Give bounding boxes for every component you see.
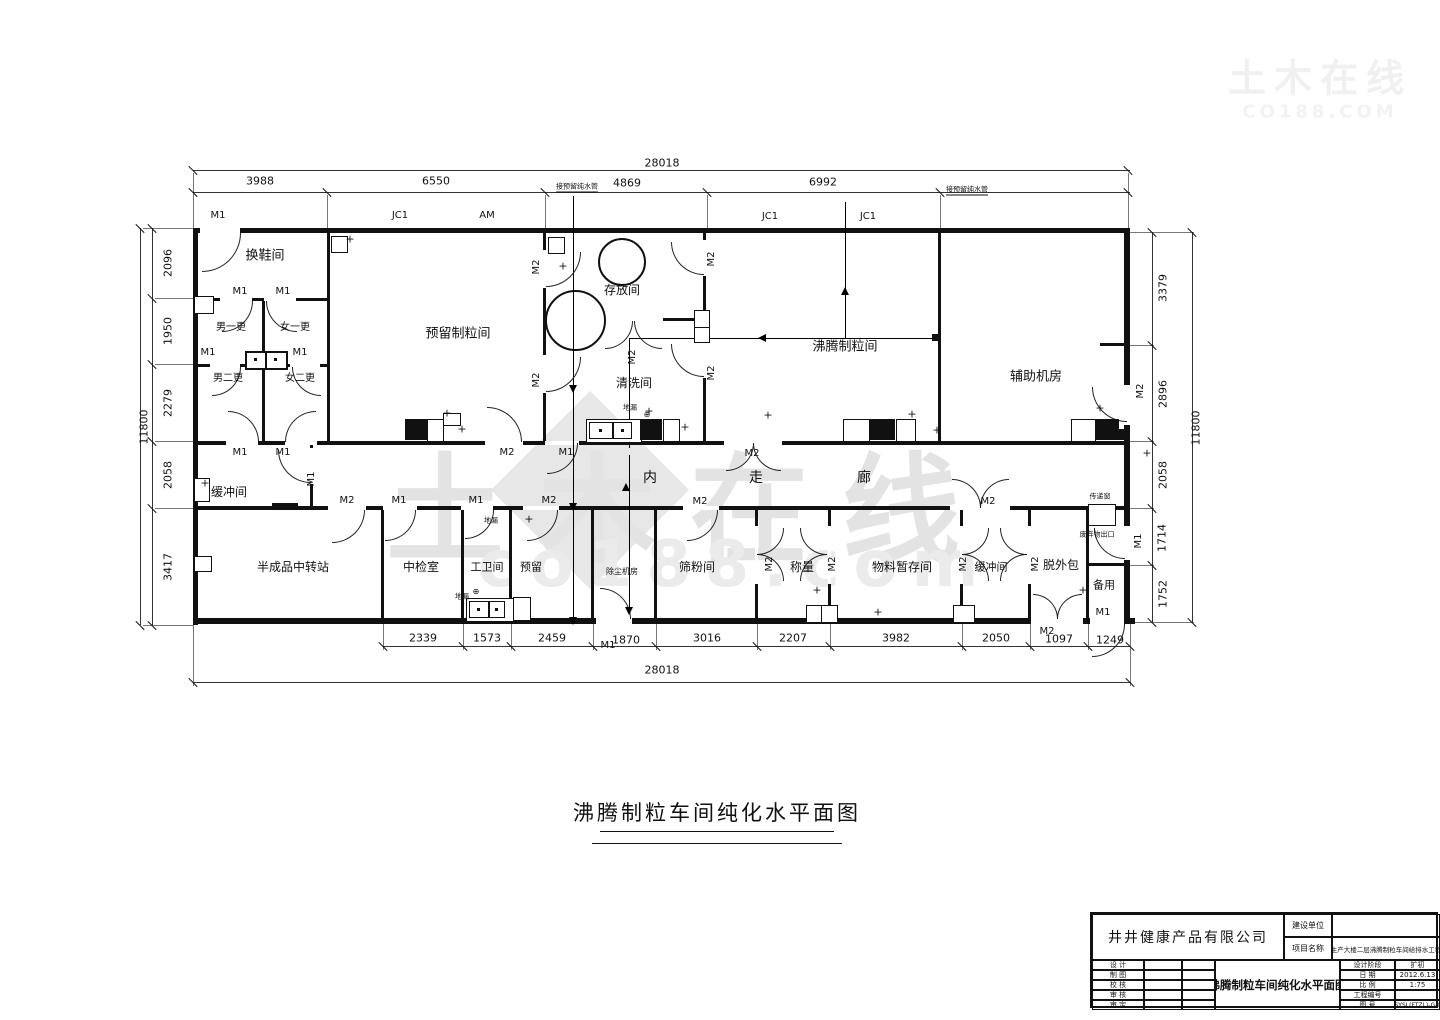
door-label: M2 xyxy=(628,350,638,365)
door-label: M1 xyxy=(293,348,308,358)
shaft-box xyxy=(869,419,895,440)
fixture-box xyxy=(194,556,212,572)
door-arc xyxy=(202,233,241,272)
fixture-dot xyxy=(477,608,480,611)
door-opening xyxy=(1028,526,1031,584)
door-arc xyxy=(1033,594,1058,619)
pipe-arrow xyxy=(625,607,633,619)
room-label: 半成品中转站 xyxy=(257,561,329,573)
door-arc xyxy=(671,242,704,275)
room-label: 辅助机房 xyxy=(1010,371,1062,384)
room-label: 备用 xyxy=(1093,580,1115,591)
dimension-line xyxy=(152,228,153,625)
plus-mark: + xyxy=(932,425,941,436)
wall-segment xyxy=(327,231,330,443)
title-underline-2 xyxy=(592,843,842,844)
waste-exit-label: 废弃物出口 xyxy=(1080,532,1115,539)
door-label: M2 xyxy=(340,496,355,506)
door-arc xyxy=(634,321,662,349)
field-value: HSYSL(FTZL)-G-06 xyxy=(1395,1000,1440,1010)
dim: 2096 xyxy=(163,249,174,277)
room-label: 除尘机房 xyxy=(606,568,638,576)
room-label: 存放间 xyxy=(604,284,640,296)
dim: 3982 xyxy=(882,633,910,644)
window-label: JC1 xyxy=(860,212,876,222)
door-label: M2 xyxy=(500,448,515,458)
dim: 2050 xyxy=(982,633,1010,644)
room-label: 女一更 xyxy=(280,323,310,333)
title-underline xyxy=(600,831,834,832)
dim: 6550 xyxy=(422,176,450,187)
dim-total-top: 28018 xyxy=(645,158,680,169)
shaft-box xyxy=(1106,429,1125,440)
dim: 2339 xyxy=(409,633,437,644)
plus-mark: + xyxy=(558,261,567,272)
room-label: 称量 xyxy=(790,561,814,573)
sign-row-blank xyxy=(1144,960,1182,970)
door-label: M1 xyxy=(392,496,407,506)
door-label: M2 xyxy=(959,557,969,572)
door-label: M1 xyxy=(276,287,291,297)
room-label: 清洗间 xyxy=(616,377,652,389)
window-label: AM xyxy=(479,211,494,221)
project-label: 项目名称 xyxy=(1284,937,1332,960)
wall-segment xyxy=(198,441,1124,445)
title-block-drawing-title: 沸腾制粒车间纯化水平面图 xyxy=(1215,960,1340,1010)
fixture-box xyxy=(1071,419,1096,442)
fixture-dot xyxy=(599,429,602,432)
pipe-line xyxy=(845,202,846,338)
extension-line xyxy=(940,195,941,229)
room-label: 换鞋间 xyxy=(245,250,284,263)
pipe-line xyxy=(629,338,938,339)
door-arc xyxy=(332,510,365,543)
dim: 3417 xyxy=(163,553,174,581)
dim: 2058 xyxy=(163,461,174,489)
room-label: 廊 xyxy=(857,471,871,485)
shaft-box xyxy=(272,503,298,509)
door-label: M1 xyxy=(559,448,574,458)
dim-total-right: 11800 xyxy=(1191,411,1202,446)
dimension-line xyxy=(193,192,1130,193)
pipe-arrow xyxy=(569,385,577,397)
window-bar xyxy=(838,230,900,233)
equipment-tank xyxy=(545,290,606,351)
drain-label: 地漏 xyxy=(623,405,637,412)
sign-row-label: 审 定 xyxy=(1092,1000,1144,1010)
extension-line xyxy=(155,441,193,442)
drain-symbol: ⊕ xyxy=(473,588,480,596)
dim: 6992 xyxy=(809,177,837,188)
room-label: 筛粉间 xyxy=(679,561,715,573)
pipe-arrow xyxy=(841,283,849,295)
equipment-tank xyxy=(598,238,646,286)
extension-line xyxy=(545,195,546,229)
field-value: 1:75 xyxy=(1395,980,1440,990)
sign-row-label: 审 核 xyxy=(1092,990,1144,1000)
door-arc xyxy=(487,407,522,442)
plus-mark: + xyxy=(345,234,354,245)
sign-row-blank xyxy=(1182,1000,1215,1010)
extension-line xyxy=(1130,622,1194,623)
dim: 1752 xyxy=(1158,580,1169,608)
shaft-box xyxy=(405,419,427,440)
field-label: 日 期 xyxy=(1340,970,1395,980)
room-label: 工卫间 xyxy=(471,562,504,573)
field-label: 工程编号 xyxy=(1340,990,1395,1000)
room-label: 中检室 xyxy=(403,561,439,573)
dim: 4869 xyxy=(613,178,641,189)
watermark-corner-sub: CO188.COM xyxy=(1242,102,1397,123)
door-arc xyxy=(285,411,316,442)
pipe-note: 接预留纯水管 xyxy=(556,184,598,193)
room-label: 物料暂存间 xyxy=(872,561,932,573)
cad-floor-plan: 土木在线 co188.com 土木在线 CO188.COM 2801839886… xyxy=(0,0,1440,1020)
room-label: 男二更 xyxy=(213,374,243,384)
extension-line xyxy=(155,508,193,509)
door-label: M1 xyxy=(307,472,317,487)
sign-row-blank xyxy=(1182,960,1215,970)
pipe-arrow xyxy=(569,503,577,515)
dimension-line xyxy=(193,682,1130,683)
window-label: JC1 xyxy=(392,211,408,221)
field-value: 扩初 xyxy=(1395,960,1440,970)
door-label: M2 xyxy=(828,557,838,572)
pipe-note: 接预留纯水管 xyxy=(946,187,988,196)
room-label: 内 xyxy=(643,471,657,485)
plus-mark: + xyxy=(1142,448,1151,459)
shaft-box xyxy=(932,334,939,341)
room-label: 走 xyxy=(749,471,763,485)
plus-mark: + xyxy=(200,478,209,489)
dim-total-left: 11800 xyxy=(139,410,150,445)
sign-row-blank xyxy=(1182,990,1215,1000)
fixture-box xyxy=(427,419,444,442)
fixture-box xyxy=(843,419,870,442)
room-label: 女二更 xyxy=(285,374,315,384)
extension-line xyxy=(155,298,193,299)
extension-line xyxy=(155,364,193,365)
extension-line xyxy=(1130,232,1194,233)
room-label: 缓冲间 xyxy=(975,562,1008,573)
wall-segment xyxy=(654,510,657,618)
pipe-arrow xyxy=(754,334,766,342)
door-arc xyxy=(1000,528,1027,555)
door-label: M2 xyxy=(532,260,542,275)
room-label: 预留 xyxy=(520,562,542,573)
window-label: JC1 xyxy=(762,212,778,222)
company-name: 井井健康产品有限公司 xyxy=(1092,914,1284,960)
wall-segment xyxy=(381,510,384,618)
fixture-box xyxy=(821,605,838,623)
door-label: M2 xyxy=(707,252,717,267)
field-label: 设计阶段 xyxy=(1340,960,1395,970)
fixture-box xyxy=(896,419,916,442)
room-label: 男一更 xyxy=(216,323,246,333)
door-arc xyxy=(1057,594,1082,619)
fixture-box xyxy=(1088,504,1116,526)
extension-line xyxy=(1128,173,1129,229)
wall-segment xyxy=(591,510,594,618)
room-label: 预留制粒间 xyxy=(425,328,490,341)
door-label: M2 xyxy=(745,449,760,459)
field-value xyxy=(1395,990,1440,1000)
door-opening xyxy=(828,526,831,584)
drain-label: 地漏 xyxy=(484,518,498,525)
sign-row-blank xyxy=(1182,980,1215,990)
sign-row-blank xyxy=(1144,1000,1182,1010)
extension-line xyxy=(193,173,194,229)
project-value: 生产大楼二层沸腾制粒车间给排水工程 xyxy=(1332,937,1440,960)
wall-segment xyxy=(1086,563,1126,566)
watermark-corner: 土木在线 xyxy=(1228,48,1412,103)
door-arc xyxy=(228,411,259,442)
dimension-line xyxy=(1152,232,1153,622)
fixture-box xyxy=(953,605,975,623)
dim: 2459 xyxy=(538,633,566,644)
room-label: 缓冲间 xyxy=(211,486,247,498)
wall-segment xyxy=(1100,343,1126,346)
plus-mark: + xyxy=(907,409,916,420)
dimension-line xyxy=(193,170,1130,171)
plus-mark: + xyxy=(442,408,451,419)
fixture-dot xyxy=(621,429,624,432)
sign-row-blank xyxy=(1144,980,1182,990)
field-label: 图 号 xyxy=(1340,1000,1395,1010)
dim: 1249 xyxy=(1096,635,1124,646)
door-label: M1 xyxy=(233,448,248,458)
extension-line xyxy=(1130,624,1131,686)
extension-line xyxy=(707,195,708,229)
owner-label: 建设单位 xyxy=(1284,914,1332,937)
dim: 3379 xyxy=(1158,274,1169,302)
pass-window-label: 传递窗 xyxy=(1090,494,1111,501)
room-label: 沸腾制粒间 xyxy=(812,341,877,354)
dim: 1573 xyxy=(473,633,501,644)
plus-mark: + xyxy=(873,607,882,618)
plus-mark: + xyxy=(457,424,466,435)
door-label: M1 xyxy=(201,348,216,358)
door-label: M1 xyxy=(469,496,484,506)
pipe-arrow xyxy=(569,617,577,629)
fixture-dot xyxy=(274,358,277,361)
door-label: M2 xyxy=(1040,627,1055,637)
fixture-box xyxy=(513,597,531,621)
shaft-box xyxy=(640,419,662,440)
sign-row-blank xyxy=(1182,970,1215,980)
door-label: M1 xyxy=(211,211,226,221)
door-label: M2 xyxy=(765,557,775,572)
pipe-arrow xyxy=(622,479,630,491)
wall-segment xyxy=(193,618,1135,624)
fixture-box xyxy=(194,296,214,314)
sign-row-label: 校 核 xyxy=(1092,980,1144,990)
field-value: 2012.6.13 xyxy=(1395,970,1440,980)
window-bar xyxy=(456,230,520,233)
door-label: M2 xyxy=(707,366,717,381)
dim: 3988 xyxy=(246,176,274,187)
sign-row-label: 制 图 xyxy=(1092,970,1144,980)
plus-mark: + xyxy=(763,410,772,421)
extension-line xyxy=(193,624,194,686)
dim: 3016 xyxy=(693,633,721,644)
door-label: M1 xyxy=(1096,608,1111,618)
plus-mark: + xyxy=(644,406,653,417)
dim: 1950 xyxy=(163,317,174,345)
sign-row-blank xyxy=(1144,990,1182,1000)
fixture-box xyxy=(663,419,680,442)
dim: 2896 xyxy=(1158,380,1169,408)
fixture-dot xyxy=(495,608,498,611)
door-label: M1 xyxy=(601,641,616,651)
drain-label: 地漏 xyxy=(455,594,469,601)
sign-row-blank xyxy=(1144,970,1182,980)
door-label: M2 xyxy=(1031,557,1041,572)
drawing-title: 沸腾制粒车间纯化水平面图 xyxy=(573,797,861,827)
dim: 2279 xyxy=(163,389,174,417)
wall-segment xyxy=(262,298,265,443)
wall-segment xyxy=(461,510,464,618)
fixture-box xyxy=(548,237,565,254)
door-label: M1 xyxy=(276,448,291,458)
plus-mark: + xyxy=(1078,585,1087,596)
window-bar xyxy=(740,230,802,233)
fixture-box xyxy=(694,327,710,343)
door-label: M2 xyxy=(532,373,542,388)
plus-mark: + xyxy=(812,585,821,596)
door-label: M2 xyxy=(693,497,708,507)
door-label: M2 xyxy=(981,497,996,507)
door-label: M1 xyxy=(233,287,248,297)
field-label: 比 例 xyxy=(1340,980,1395,990)
dim: 1714 xyxy=(1157,524,1168,552)
plus-mark: + xyxy=(680,422,689,433)
door-label: M2 xyxy=(542,496,557,506)
dim: 2207 xyxy=(779,633,807,644)
room-label: 脱外包 xyxy=(1043,559,1079,571)
sign-row-label: 设 计 xyxy=(1092,960,1144,970)
wall-segment xyxy=(193,228,1130,233)
door-label: M1 xyxy=(1134,534,1144,549)
extension-line xyxy=(327,195,328,229)
door-label: M2 xyxy=(1136,384,1146,399)
dim: 2058 xyxy=(1158,461,1169,489)
dim-total-bottom: 28018 xyxy=(645,665,680,676)
door-arc xyxy=(671,344,704,377)
plus-mark: + xyxy=(1095,403,1104,414)
fixture-dot xyxy=(254,358,257,361)
fixture-box xyxy=(694,310,710,328)
owner-value xyxy=(1332,914,1440,937)
title-block: 井井健康产品有限公司 建设单位 项目名称 生产大楼二层沸腾制粒车间给排水工程 设… xyxy=(1090,912,1438,1008)
window-bar xyxy=(370,230,432,233)
dim: 1870 xyxy=(612,635,640,646)
plus-mark: + xyxy=(524,514,533,525)
